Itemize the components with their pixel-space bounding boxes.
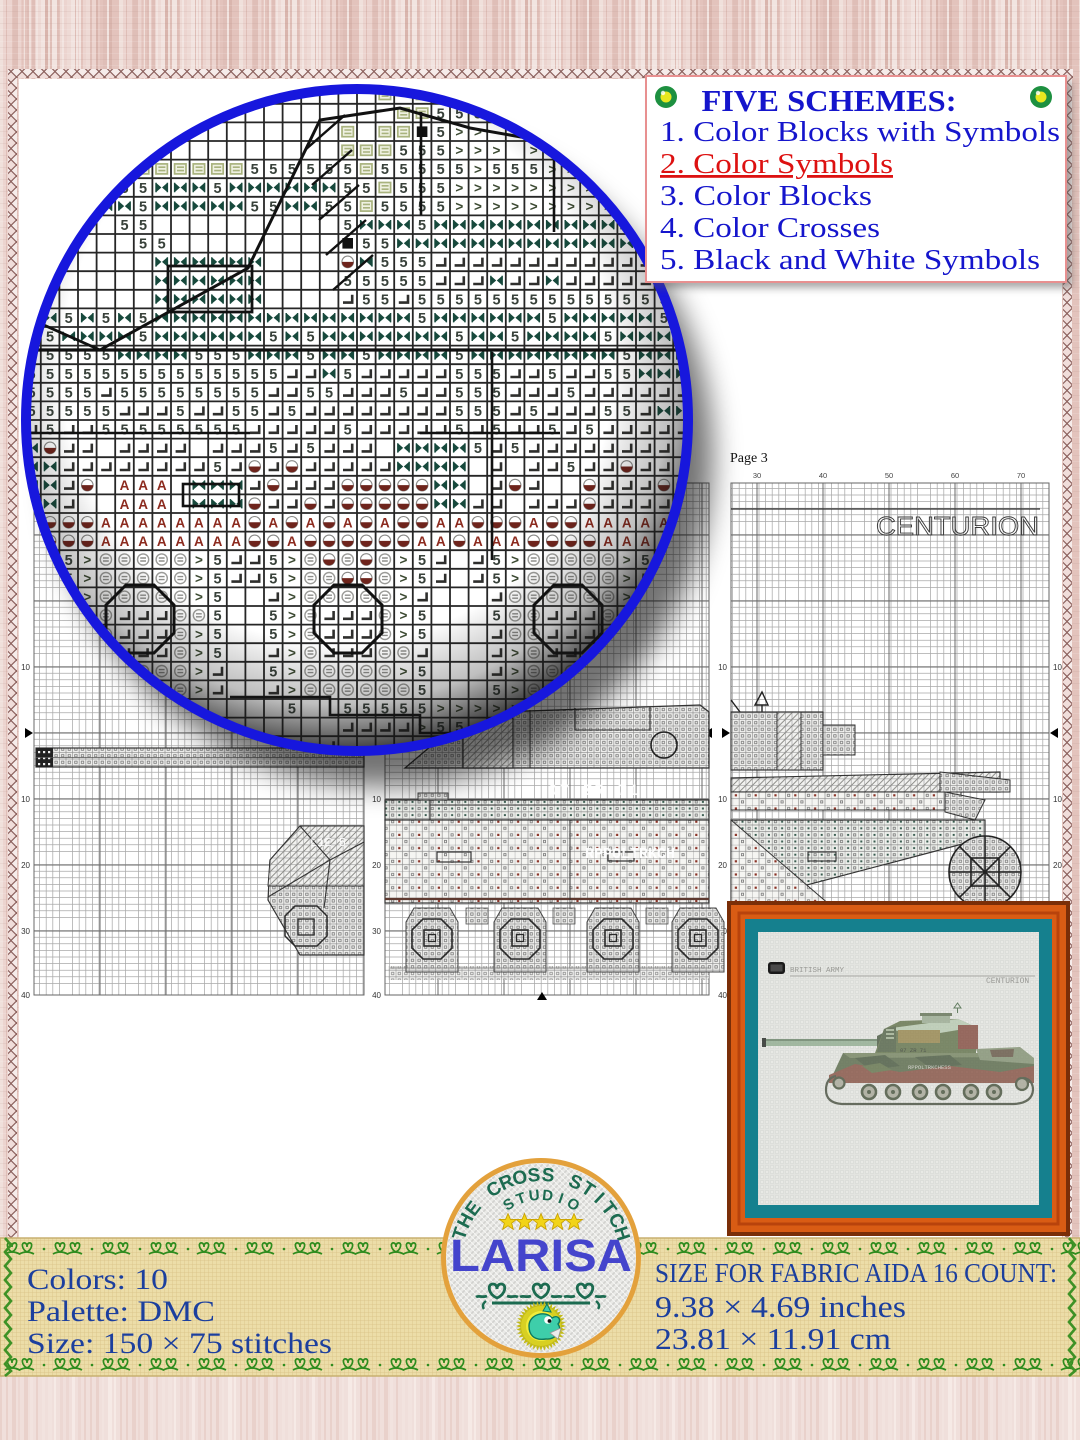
svg-text:10: 10 <box>718 663 727 672</box>
svg-text:CENTURION: CENTURION <box>986 977 1029 986</box>
svg-text:Size: 150 × 75 stitches: Size: 150 × 75 stitches <box>27 1327 332 1360</box>
svg-text:10: 10 <box>372 795 381 804</box>
svg-text:Colors: 10: Colors: 10 <box>27 1263 168 1296</box>
svg-text:40: 40 <box>372 991 381 1000</box>
svg-text:L1E 5: L1E 5 <box>310 836 346 850</box>
svg-text:FIVE SCHEMES:: FIVE SCHEMES: <box>702 83 957 118</box>
svg-text:30: 30 <box>21 927 30 936</box>
svg-text:10: 10 <box>21 795 30 804</box>
svg-text:RPPOLTRKCH: RPPOLTRKCH <box>585 846 675 863</box>
svg-text:40: 40 <box>21 991 30 1000</box>
svg-text:07 ZR 71: 07 ZR 71 <box>548 782 641 800</box>
svg-text:20: 20 <box>718 861 727 870</box>
svg-text:U: U <box>528 1187 541 1205</box>
svg-text:10: 10 <box>21 663 30 672</box>
svg-text:2. Color Symbols: 2. Color Symbols <box>660 149 893 180</box>
svg-text:4. Color Crosses: 4. Color Crosses <box>660 213 880 244</box>
svg-text:SIZE FOR FABRIC AIDA 16 COUNT:: SIZE FOR FABRIC AIDA 16 COUNT: <box>655 1258 1057 1288</box>
svg-text:D: D <box>541 1187 554 1205</box>
svg-text:50: 50 <box>885 471 893 480</box>
svg-text:40: 40 <box>819 471 827 480</box>
svg-text:Page 3: Page 3 <box>730 451 768 466</box>
svg-text:23.81 × 11.91 cm: 23.81 × 11.91 cm <box>655 1321 891 1356</box>
svg-text:40: 40 <box>718 991 727 1000</box>
svg-text:CENTURION: CENTURION <box>876 511 1039 541</box>
svg-text:10: 10 <box>1053 795 1062 804</box>
svg-text:30: 30 <box>753 471 761 480</box>
svg-text:10: 10 <box>718 795 727 804</box>
svg-text:20: 20 <box>1053 861 1062 870</box>
svg-text:30: 30 <box>372 927 381 936</box>
svg-text:1. Color Blocks with Symbols: 1. Color Blocks with Symbols <box>660 117 1060 148</box>
svg-text:3. Color Blocks: 3. Color Blocks <box>660 181 872 212</box>
svg-text:5. Black and White Symbols: 5. Black and White Symbols <box>660 245 1040 276</box>
svg-text:60: 60 <box>951 471 959 480</box>
svg-text:S: S <box>541 1165 555 1187</box>
svg-text:20: 20 <box>372 861 381 870</box>
svg-text:BRITISH ARMY: BRITISH ARMY <box>790 967 845 975</box>
svg-text:9.38 × 4.69 inches: 9.38 × 4.69 inches <box>655 1289 906 1324</box>
svg-text:S: S <box>527 1165 541 1187</box>
svg-text:10: 10 <box>1053 663 1062 672</box>
svg-text:Palette: DMC: Palette: DMC <box>27 1295 215 1328</box>
svg-text:LARISA: LARISA <box>450 1230 632 1281</box>
svg-text:70: 70 <box>1017 471 1025 480</box>
svg-text:20: 20 <box>21 861 30 870</box>
